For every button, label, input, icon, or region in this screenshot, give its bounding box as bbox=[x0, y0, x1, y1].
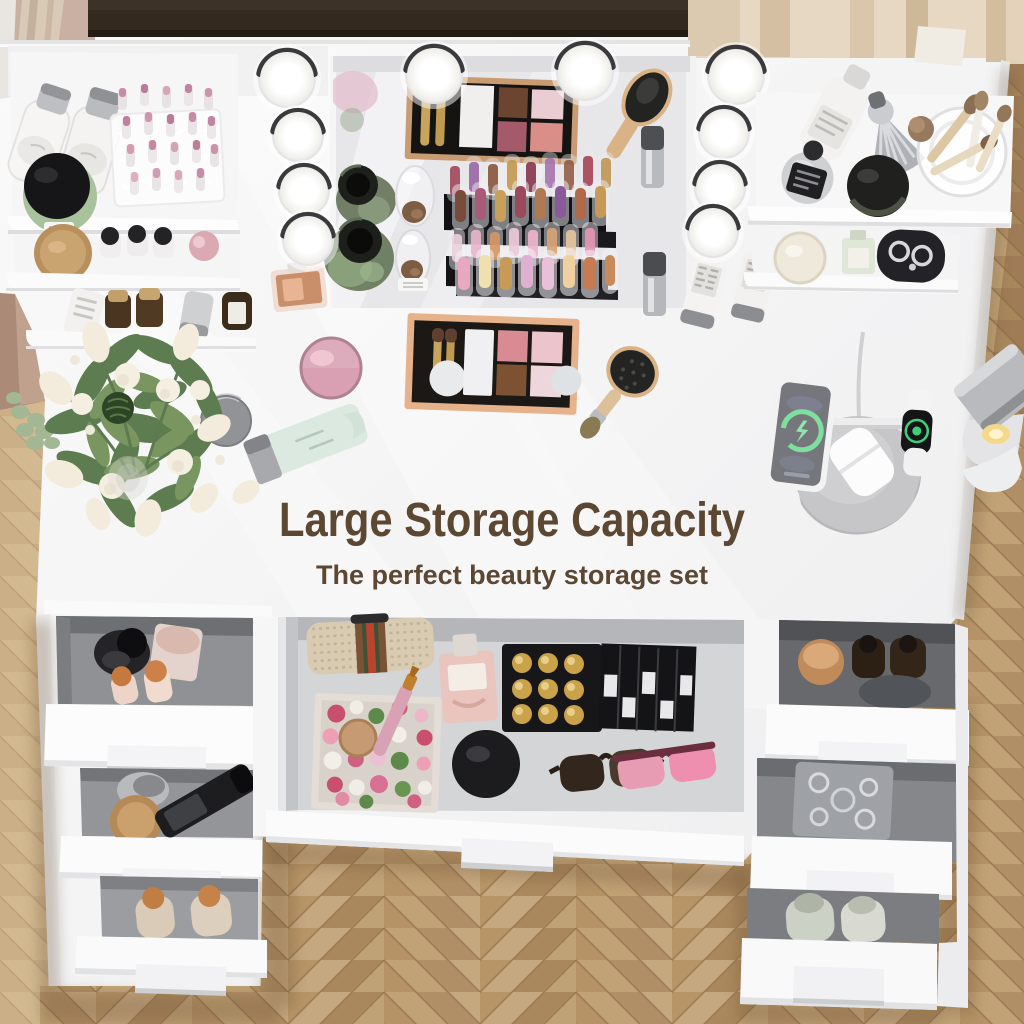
svg-text:Large Storage Capacity: Large Storage Capacity bbox=[279, 494, 745, 547]
svg-text:The perfect beauty storage: The perfect beauty storage set bbox=[316, 560, 708, 590]
